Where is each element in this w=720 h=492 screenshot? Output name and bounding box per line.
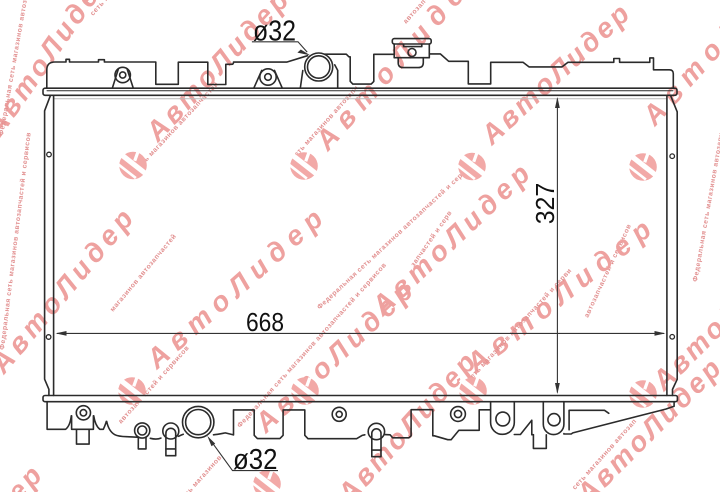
svg-text:ø32: ø32 xyxy=(253,15,296,47)
svg-text:327: 327 xyxy=(530,183,560,225)
svg-text:668: 668 xyxy=(246,307,284,337)
svg-text:ø32: ø32 xyxy=(233,444,278,476)
